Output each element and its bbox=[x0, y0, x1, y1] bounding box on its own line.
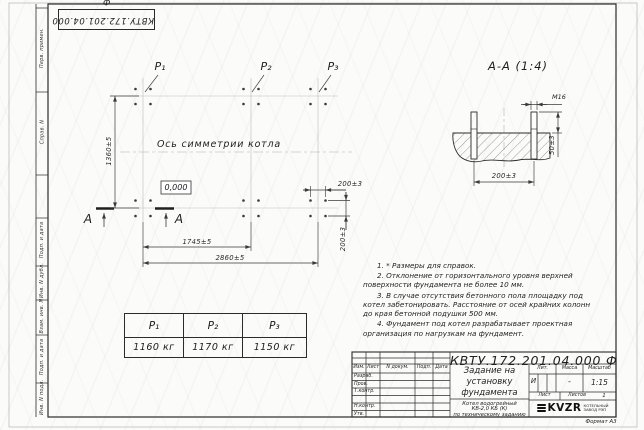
tb-masshtab-value: 1:15 bbox=[583, 378, 616, 387]
dim-1360: 1360±5 bbox=[105, 131, 113, 171]
tb-product-line-3: по техническому заданию bbox=[450, 412, 529, 418]
symmetry-axis-label: Ось симметрии котла bbox=[157, 139, 281, 150]
margin-label-inv-podl: Инв. N подл. bbox=[39, 381, 45, 415]
margin-label-perv-primen: Перв. примен. bbox=[39, 6, 45, 90]
load-point-label-p3: Р₃ bbox=[321, 60, 345, 73]
note-4: 4. Фундамент под котел разрабатывает про… bbox=[363, 319, 597, 337]
tb-sheets-value: 1 bbox=[594, 393, 614, 399]
tb-massa-value: - bbox=[556, 377, 583, 386]
load-point-label-p2: Р₂ bbox=[254, 60, 278, 73]
dim-bolt-vertical: 200±3 bbox=[339, 221, 347, 257]
margin-label-podp-data-1: Подп. и дата bbox=[39, 216, 45, 264]
dim-embed-50: 50±3 bbox=[548, 130, 556, 160]
tb-row-nkontr: Н.контр. bbox=[354, 404, 375, 409]
drawing-sheet: КВТУ.172.201.04.000 Ф Перв. примен. Спра… bbox=[0, 0, 644, 430]
tb-lit-header: Лит. bbox=[529, 366, 556, 371]
top-doc-number: КВТУ.172.201.04.000 Ф bbox=[59, 10, 154, 29]
tb-col-list: Лист bbox=[366, 365, 380, 370]
tb-row-prov: Пров. bbox=[354, 382, 368, 387]
tb-col-data: Дата bbox=[433, 365, 450, 370]
note-1: 1. * Размеры для справок. bbox=[363, 261, 597, 270]
note-2: 2. Отклонение от горизонтального уровня … bbox=[363, 271, 597, 289]
section-view-title: А-А (1:4) bbox=[472, 59, 564, 73]
loads-table-header-p1: Р₁ bbox=[125, 314, 184, 338]
margin-label-sprav-n: Справ. N bbox=[40, 91, 46, 174]
loads-table: Р₁ Р₂ Р₃ 1160 кг 1170 кг 1150 кг bbox=[124, 313, 307, 358]
tb-col-izm: Изм. bbox=[352, 365, 366, 370]
format-label: Формат А3 bbox=[566, 419, 636, 425]
tb-row-utv: Утв. bbox=[354, 412, 364, 417]
section-cut-letter-left: А bbox=[81, 212, 95, 226]
loads-table-header-p3: Р₃ bbox=[243, 314, 306, 338]
loads-table-header-p2: Р₂ bbox=[184, 314, 243, 338]
tb-massa-header: Масса bbox=[556, 366, 583, 371]
tb-title-line-1: Задание на bbox=[450, 366, 529, 376]
note-3: 3. В случае отсутствия бетонного пола пл… bbox=[363, 291, 597, 319]
logo-org-line-2: ЗАВОД РЭП bbox=[584, 408, 609, 412]
tb-col-ndokum: N докум. bbox=[380, 365, 415, 370]
margin-label-vzam-inv: Взам. инв. N bbox=[39, 298, 45, 334]
logo-org-text: КОТЕЛЬНЫЙ ЗАВОД РЭП bbox=[584, 404, 609, 413]
loads-table-value-p2: 1170 кг bbox=[184, 338, 243, 357]
load-point-label-p1: Р₁ bbox=[148, 60, 172, 73]
loads-table-value-p1: 1160 кг bbox=[125, 338, 184, 357]
tb-sheets-label: Листов bbox=[562, 393, 592, 398]
dim-1745: 1745±5 bbox=[177, 238, 217, 246]
manufacturer-logo: KVZR КОТЕЛЬНЫЙ ЗАВОД РЭП bbox=[530, 400, 615, 416]
tb-title-line-3: фундамента bbox=[450, 388, 529, 398]
tb-row-tkontr: Т.контр. bbox=[354, 389, 375, 394]
tb-col-podp: Подп. bbox=[415, 365, 433, 370]
logo-wave-icon bbox=[537, 404, 546, 412]
notes-block: 1. * Размеры для справок. 2. Отклонение … bbox=[363, 261, 597, 339]
tb-sheet-label: Лист bbox=[529, 393, 560, 398]
margin-label-inv-dubl: Инв. N дубл. bbox=[39, 264, 45, 298]
tb-lit-value: И bbox=[529, 377, 538, 385]
tb-title-line-2: установку bbox=[450, 377, 529, 387]
margin-label-podp-data-2: Подп. и дата bbox=[39, 333, 45, 381]
level-mark: 0,000 bbox=[161, 183, 191, 192]
dim-section-200: 200±3 bbox=[486, 172, 522, 180]
tb-masshtab-header: Масштаб bbox=[583, 366, 616, 371]
tb-row-razrab: Разраб. bbox=[354, 374, 373, 379]
thread-size-label: М16 bbox=[546, 93, 572, 101]
dim-2860: 2860±5 bbox=[210, 254, 250, 262]
section-cut-letter-right: А bbox=[172, 212, 186, 226]
top-doc-number-stamp: КВТУ.172.201.04.000 Ф bbox=[58, 9, 155, 30]
logo-text: KVZR bbox=[548, 402, 582, 414]
loads-table-value-p3: 1150 кг bbox=[243, 338, 306, 357]
dim-bolt-horizontal: 200±3 bbox=[332, 180, 368, 188]
